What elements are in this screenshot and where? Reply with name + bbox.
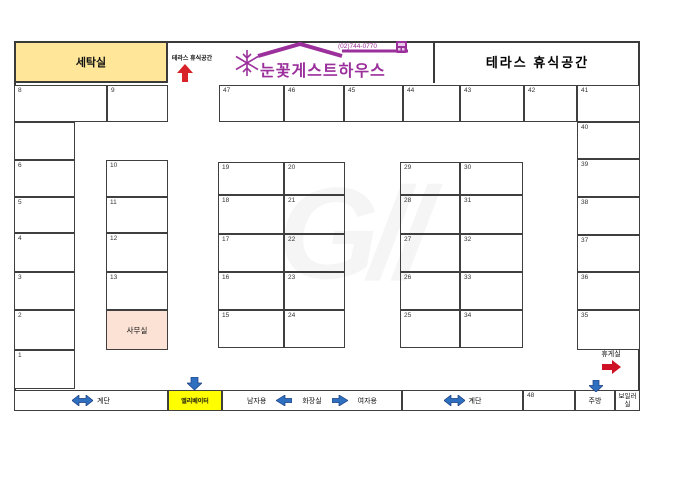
room-label: 24 bbox=[288, 312, 295, 319]
room-label: 5 bbox=[18, 199, 22, 206]
room-cell-48: 48 bbox=[523, 390, 575, 411]
room-cell-40: 40 bbox=[577, 122, 640, 159]
room-cell-23: 23 bbox=[284, 272, 345, 310]
room-label: 6 bbox=[18, 162, 22, 169]
room-label: 12 bbox=[110, 235, 117, 242]
room-cell-18: 18 bbox=[218, 195, 284, 234]
room-cell-27: 27 bbox=[400, 234, 460, 272]
stairs-right-arrow-icon bbox=[444, 395, 465, 406]
guesthouse-logo-text: 눈꽃게스트하우스 bbox=[260, 57, 386, 81]
room-cell-16: 16 bbox=[218, 272, 284, 310]
room-label: 8 bbox=[18, 87, 22, 94]
guesthouse-floor-plan: 세탁실 테라스 휴식공간 눈꽃게스트하우스 (02)744-0770 테라스 휴… bbox=[0, 0, 679, 480]
elevator-cell: 엘리베이터 bbox=[168, 390, 222, 411]
stairs-left-arrow-icon bbox=[72, 395, 93, 406]
guesthouse-phone: (02)744-0770 bbox=[338, 43, 377, 50]
room-label: 39 bbox=[581, 161, 588, 168]
room-cell-13: 13 bbox=[106, 272, 168, 310]
restroom-cell: 남자용 화장실 여자용 bbox=[222, 390, 402, 411]
restroom-label: 화장실 bbox=[302, 396, 321, 406]
room-cell-9: 9 bbox=[107, 85, 168, 122]
room-label: 17 bbox=[222, 236, 229, 243]
room-label: 15 bbox=[222, 312, 229, 319]
room-label: 4 bbox=[18, 235, 22, 242]
room-cell-32: 32 bbox=[460, 234, 523, 272]
room-label: 48 bbox=[527, 392, 534, 399]
room-label: 37 bbox=[581, 237, 588, 244]
room-cell-12: 12 bbox=[106, 233, 168, 272]
logo-roof-icon bbox=[256, 41, 414, 58]
room-cell-2: 2 bbox=[14, 310, 75, 350]
room-label: 3 bbox=[18, 274, 22, 281]
room-cell-10: 10 bbox=[106, 160, 168, 197]
room-cell-41: 41 bbox=[577, 85, 640, 122]
elevator-down-arrow-icon bbox=[187, 377, 202, 390]
phone-badge-icon bbox=[396, 41, 407, 53]
room-cell-46: 46 bbox=[284, 85, 344, 122]
room-label: 42 bbox=[528, 87, 535, 94]
room-cell-31: 31 bbox=[460, 195, 523, 234]
room-label: 29 bbox=[404, 164, 411, 171]
room-cell-28: 28 bbox=[400, 195, 460, 234]
room-label: 38 bbox=[581, 199, 588, 206]
room-cell-34: 34 bbox=[460, 310, 523, 348]
room-label: 26 bbox=[404, 274, 411, 281]
terrace-entrance-label: 테라스 휴식공간 bbox=[166, 53, 218, 62]
room-label: 40 bbox=[581, 124, 588, 131]
lounge-label: 휴게실 bbox=[588, 349, 634, 359]
room-cell-11: 11 bbox=[106, 197, 168, 233]
room-label: 28 bbox=[404, 197, 411, 204]
elevator-label: 엘리베이터 bbox=[181, 396, 209, 405]
room-label: 30 bbox=[464, 164, 471, 171]
room-label: 21 bbox=[288, 197, 295, 204]
room-cell-36: 36 bbox=[577, 272, 640, 310]
stairs-left-label: 계단 bbox=[97, 396, 110, 406]
room-cell-22: 22 bbox=[284, 234, 345, 272]
room-label: 22 bbox=[288, 236, 295, 243]
room-label: 31 bbox=[464, 197, 471, 204]
lounge-right-arrow-icon bbox=[602, 360, 621, 374]
room-cell-5: 5 bbox=[14, 197, 75, 233]
room-cell-38: 38 bbox=[577, 197, 640, 235]
stairs-right-cell: 계단 bbox=[402, 390, 523, 411]
room-cell-8: 8 bbox=[14, 85, 107, 122]
room-cell-44: 44 bbox=[403, 85, 460, 122]
room-label: 2 bbox=[18, 312, 22, 319]
room-cell-47: 47 bbox=[219, 85, 284, 122]
mens-label: 남자용 bbox=[247, 396, 266, 406]
room-label: 9 bbox=[111, 87, 115, 94]
room-cell-26: 26 bbox=[400, 272, 460, 310]
room-cell-21: 21 bbox=[284, 195, 345, 234]
room-label: 19 bbox=[222, 164, 229, 171]
womens-label: 여자용 bbox=[358, 396, 377, 406]
room-cell-37: 37 bbox=[577, 235, 640, 272]
room-label: 33 bbox=[464, 274, 471, 281]
room-cell-4: 4 bbox=[14, 233, 75, 272]
room-cell-29: 29 bbox=[400, 162, 460, 195]
room-label: 35 bbox=[581, 312, 588, 319]
room-label: 34 bbox=[464, 312, 471, 319]
room-cell-15: 15 bbox=[218, 310, 284, 348]
room-label: 23 bbox=[288, 274, 295, 281]
room-label: 47 bbox=[223, 87, 230, 94]
room-label: 32 bbox=[464, 236, 471, 243]
room-cell-20: 20 bbox=[284, 162, 345, 195]
room-label: 43 bbox=[464, 87, 471, 94]
room-cell-45: 45 bbox=[344, 85, 403, 122]
laundry-room-box: 세탁실 bbox=[14, 41, 168, 83]
room-label: 25 bbox=[404, 312, 411, 319]
room-cell-blank bbox=[14, 122, 75, 160]
room-cell-43: 43 bbox=[460, 85, 524, 122]
room-label: 36 bbox=[581, 274, 588, 281]
room-label: 16 bbox=[222, 274, 229, 281]
womens-right-arrow-icon bbox=[332, 395, 348, 406]
room-label: 27 bbox=[404, 236, 411, 243]
room-label: 10 bbox=[110, 162, 117, 169]
room-cell-3: 3 bbox=[14, 272, 75, 310]
room-cell-6: 6 bbox=[14, 160, 75, 197]
room-label: 45 bbox=[348, 87, 355, 94]
laundry-room-label: 세탁실 bbox=[76, 54, 106, 70]
terrace-lounge-label: 테라스 휴식공간 bbox=[435, 41, 640, 82]
room-cell-33: 33 bbox=[460, 272, 523, 310]
boiler-room-cell: 보일러실 bbox=[615, 390, 640, 411]
boiler-room-label: 보일러실 bbox=[617, 393, 638, 408]
mens-left-arrow-icon bbox=[276, 395, 292, 406]
room-cell-42: 42 bbox=[524, 85, 577, 122]
room-cell-17: 17 bbox=[218, 234, 284, 272]
kitchen-label: 주방 bbox=[589, 396, 602, 406]
room-cell-1: 1 bbox=[14, 350, 75, 389]
room-cell-39: 39 bbox=[577, 159, 640, 197]
room-cell-30: 30 bbox=[460, 162, 523, 195]
room-label: 20 bbox=[288, 164, 295, 171]
room-label: 13 bbox=[110, 274, 117, 281]
kitchen-cell: 주방 bbox=[575, 390, 615, 411]
room-label: 1 bbox=[18, 352, 22, 359]
room-label: 46 bbox=[288, 87, 295, 94]
room-label: 41 bbox=[581, 87, 588, 94]
room-label: 사무실 bbox=[127, 325, 148, 336]
room-label: 44 bbox=[407, 87, 414, 94]
terrace-up-arrow-icon bbox=[177, 64, 193, 82]
room-cell-24: 24 bbox=[284, 310, 345, 348]
room-cell-35: 35 bbox=[577, 310, 640, 350]
kitchen-down-arrow-icon bbox=[589, 380, 603, 392]
stairs-right-label: 계단 bbox=[469, 396, 482, 406]
stairs-left-cell: 계단 bbox=[14, 390, 168, 411]
room-label: 11 bbox=[110, 199, 117, 206]
room-cell-사무실: 사무실 bbox=[106, 310, 168, 350]
room-cell-19: 19 bbox=[218, 162, 284, 195]
room-label: 18 bbox=[222, 197, 229, 204]
room-cell-25: 25 bbox=[400, 310, 460, 348]
